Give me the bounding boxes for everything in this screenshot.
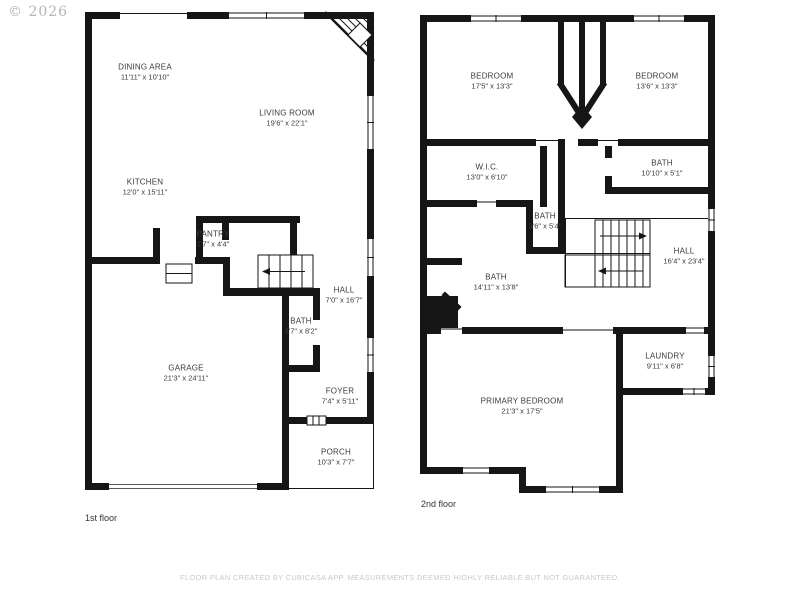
room-dims: 12'0" x 15'11" bbox=[123, 187, 168, 196]
room-label-bedroom-left: BEDROOM 17'5" x 13'3" bbox=[471, 71, 514, 90]
window bbox=[708, 208, 715, 232]
room-label-bath-small: BATH 3'6" x 5'4" bbox=[529, 211, 562, 230]
window bbox=[470, 15, 522, 22]
window bbox=[462, 467, 490, 474]
room-dims: 10'10" x 5'1" bbox=[641, 168, 682, 177]
staircase bbox=[258, 255, 313, 288]
room-label-primary-bedroom: PRIMARY BEDROOM 21'3" x 17'5" bbox=[481, 396, 564, 415]
room-dims: 3'6" x 5'4" bbox=[529, 221, 562, 230]
room-label-hall: HALL 7'0" x 16'7" bbox=[326, 285, 363, 304]
first-floor-plan bbox=[85, 12, 374, 490]
window bbox=[545, 486, 600, 493]
room-dims: 7'4" x 5'11" bbox=[322, 396, 358, 405]
floor-name-first: 1st floor bbox=[85, 513, 117, 523]
room-dims: 14'11" x 13'8" bbox=[474, 282, 519, 291]
room-dims: 7'0" x 16'7" bbox=[326, 295, 363, 304]
room-name: PRIMARY BEDROOM bbox=[481, 396, 564, 406]
room-name: LIVING ROOM bbox=[259, 108, 315, 118]
room-label-living-room: LIVING ROOM 19'6" x 22'1" bbox=[259, 108, 315, 127]
room-dims: 3'7" x 8'2" bbox=[285, 326, 318, 335]
shower-fixture bbox=[424, 295, 458, 328]
window bbox=[367, 95, 374, 150]
floor-plan-page: DINING AREA 11'11" x 10'10" LIVING ROOM … bbox=[0, 0, 800, 600]
window bbox=[633, 15, 685, 22]
floor-name-second: 2nd floor bbox=[421, 499, 456, 509]
room-label-bath: BATH 3'7" x 8'2" bbox=[285, 316, 318, 335]
room-dims: 16'4" x 23'4" bbox=[663, 256, 704, 265]
room-name: HALL bbox=[326, 285, 363, 295]
room-name: W.I.C. bbox=[466, 162, 507, 172]
room-dims: 10'3" x 7'7" bbox=[318, 457, 355, 466]
room-label-bath-main: BATH 14'11" x 13'8" bbox=[474, 272, 519, 291]
room-name: LAUNDRY bbox=[645, 351, 685, 361]
copyright-watermark: © 2026 bbox=[8, 4, 68, 20]
chimney-feature bbox=[558, 22, 606, 129]
corner-hatch bbox=[325, 12, 374, 61]
room-dims: 21'3" x 17'5" bbox=[481, 406, 564, 415]
window bbox=[708, 355, 715, 378]
room-dims: 2'7" x 4'4" bbox=[197, 239, 230, 248]
room-name: BEDROOM bbox=[471, 71, 514, 81]
room-name: PORCH bbox=[318, 447, 355, 457]
room-dims: 13'0" x 6'10" bbox=[466, 172, 507, 181]
steps bbox=[166, 264, 192, 283]
room-dims: 13'6" x 13'3" bbox=[636, 81, 679, 90]
room-label-laundry: LAUNDRY 9'11" x 6'8" bbox=[645, 351, 685, 370]
room-name: PANTRY bbox=[197, 229, 230, 239]
room-dims: 19'6" x 22'1" bbox=[259, 118, 315, 127]
room-name: BATH bbox=[285, 316, 318, 326]
room-dims: 9'11" x 6'8" bbox=[645, 361, 685, 370]
room-name: BATH bbox=[641, 158, 682, 168]
room-label-wic: W.I.C. 13'0" x 6'10" bbox=[466, 162, 507, 181]
room-label-hall-upper: HALL 16'4" x 23'4" bbox=[663, 246, 704, 265]
door-threshold bbox=[307, 416, 326, 425]
room-name: BATH bbox=[529, 211, 562, 221]
room-name: BEDROOM bbox=[636, 71, 679, 81]
garage-door bbox=[108, 483, 258, 490]
window bbox=[367, 337, 374, 373]
disclaimer-footer: FLOOR PLAN CREATED BY CUBICASA APP. MEAS… bbox=[0, 573, 800, 582]
room-label-porch: PORCH 10'3" x 7'7" bbox=[318, 447, 355, 466]
door-opening bbox=[120, 12, 187, 19]
room-name: FOYER bbox=[322, 386, 358, 396]
window bbox=[228, 12, 305, 19]
room-dims: 17'5" x 13'3" bbox=[471, 81, 514, 90]
room-name: KITCHEN bbox=[123, 177, 168, 187]
room-label-kitchen: KITCHEN 12'0" x 15'11" bbox=[123, 177, 168, 196]
window bbox=[682, 388, 706, 395]
floor-plan-drawing bbox=[0, 0, 800, 600]
room-name: BATH bbox=[474, 272, 519, 282]
room-dims: 21'3" x 24'11" bbox=[164, 373, 209, 382]
room-name: GARAGE bbox=[164, 363, 209, 373]
room-name: DINING AREA bbox=[118, 62, 172, 72]
room-label-pantry: PANTRY 2'7" x 4'4" bbox=[197, 229, 230, 248]
room-label-garage: GARAGE 21'3" x 24'11" bbox=[164, 363, 209, 382]
room-label-foyer: FOYER 7'4" x 5'11" bbox=[322, 386, 358, 405]
window bbox=[685, 327, 705, 334]
room-dims: 11'11" x 10'10" bbox=[118, 72, 172, 81]
room-label-bedroom-right: BEDROOM 13'6" x 13'3" bbox=[636, 71, 679, 90]
window bbox=[367, 238, 374, 277]
room-label-dining-area: DINING AREA 11'11" x 10'10" bbox=[118, 62, 172, 81]
room-name: HALL bbox=[663, 246, 704, 256]
room-label-bath-right: BATH 10'10" x 5'1" bbox=[641, 158, 682, 177]
